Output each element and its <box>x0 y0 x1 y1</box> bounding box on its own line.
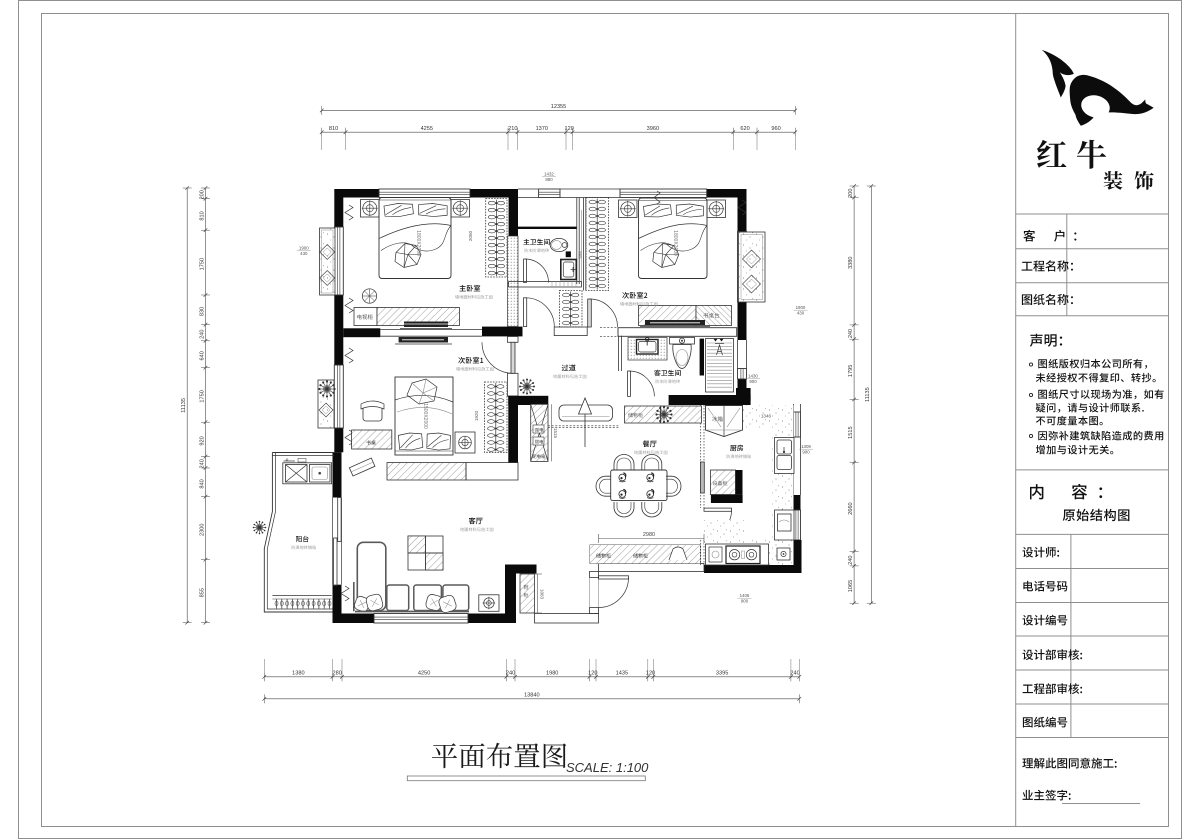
svg-text:2300: 2300 <box>199 523 205 535</box>
svg-text:1500X2000: 1500X2000 <box>422 403 428 429</box>
svg-text:1800X2000: 1800X2000 <box>415 230 421 256</box>
svg-text:120: 120 <box>646 670 655 676</box>
svg-text:240: 240 <box>506 670 515 676</box>
svg-text:1900: 1900 <box>796 305 806 310</box>
svg-text:4255: 4255 <box>421 126 433 132</box>
svg-text:1065: 1065 <box>848 580 854 592</box>
svg-text:880: 880 <box>545 177 553 182</box>
svg-text:200: 200 <box>848 189 854 198</box>
svg-text:900: 900 <box>741 599 749 604</box>
svg-text:4250: 4250 <box>418 670 430 676</box>
svg-text:810: 810 <box>329 126 338 132</box>
svg-text:900: 900 <box>749 379 757 384</box>
svg-text:1920: 1920 <box>474 410 479 421</box>
svg-text:1795: 1795 <box>848 365 854 377</box>
svg-text:1980: 1980 <box>546 670 558 676</box>
svg-text:1406: 1406 <box>740 593 750 598</box>
svg-text:620: 620 <box>740 126 749 132</box>
svg-text:120: 120 <box>565 126 574 132</box>
svg-text:1750: 1750 <box>199 390 205 402</box>
svg-text:240: 240 <box>848 556 854 565</box>
svg-text:2050: 2050 <box>468 230 473 241</box>
svg-text:1063: 1063 <box>539 589 544 600</box>
svg-text:1750: 1750 <box>199 258 205 270</box>
svg-text:1309: 1309 <box>801 444 811 449</box>
svg-text:1370: 1370 <box>536 126 548 132</box>
svg-text:1800X2000: 1800X2000 <box>672 230 678 256</box>
svg-text:SCALE: 1:100: SCALE: 1:100 <box>566 760 649 775</box>
svg-text:2980: 2980 <box>643 532 655 538</box>
svg-text:280: 280 <box>333 670 342 676</box>
svg-text:1515: 1515 <box>848 426 854 438</box>
svg-text:1346: 1346 <box>761 414 772 419</box>
svg-text:240: 240 <box>199 459 205 468</box>
svg-text:200: 200 <box>199 190 205 199</box>
svg-text:430: 430 <box>797 311 805 316</box>
svg-text:2660: 2660 <box>848 502 854 514</box>
svg-text:240: 240 <box>848 329 854 338</box>
svg-text:640: 640 <box>199 351 205 360</box>
svg-text:12355: 12355 <box>551 104 567 110</box>
svg-text:840: 840 <box>199 479 205 488</box>
svg-text:830: 830 <box>199 307 205 316</box>
svg-text:11135: 11135 <box>865 387 871 402</box>
svg-text:210: 210 <box>508 126 517 132</box>
svg-text:430: 430 <box>300 251 308 256</box>
svg-text:1515: 1515 <box>553 428 558 439</box>
svg-text:865: 865 <box>577 251 582 259</box>
svg-text:240: 240 <box>790 670 799 676</box>
svg-text:1430: 1430 <box>748 374 758 379</box>
svg-text:1900: 1900 <box>299 246 309 251</box>
svg-text:1435: 1435 <box>616 670 628 676</box>
svg-text:11135: 11135 <box>181 398 187 413</box>
svg-text:13840: 13840 <box>524 693 540 699</box>
svg-text:810: 810 <box>199 211 205 220</box>
svg-text:240: 240 <box>199 330 205 339</box>
svg-text:3960: 3960 <box>647 126 659 132</box>
svg-text:855: 855 <box>199 588 205 597</box>
svg-text:1380: 1380 <box>292 670 304 676</box>
svg-text:3395: 3395 <box>716 670 728 676</box>
svg-text:1432: 1432 <box>544 172 554 177</box>
svg-text:3380: 3380 <box>848 256 854 268</box>
svg-text:920: 920 <box>199 436 205 445</box>
svg-text:960: 960 <box>771 126 780 132</box>
svg-text:900: 900 <box>802 450 810 455</box>
